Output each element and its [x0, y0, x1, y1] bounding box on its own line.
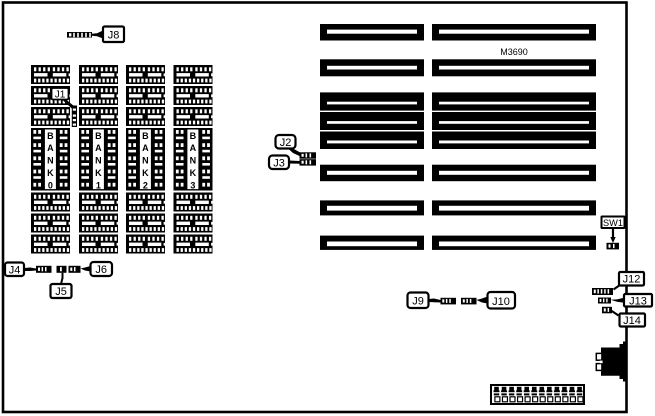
svg-text:J10: J10: [492, 296, 510, 308]
svg-text:1: 1: [96, 180, 101, 190]
svg-text:K: K: [142, 168, 149, 178]
svg-text:K: K: [47, 168, 54, 178]
svg-text:A: A: [95, 143, 102, 153]
svg-text:M3690: M3690: [500, 47, 528, 57]
svg-text:A: A: [142, 143, 149, 153]
svg-text:B: B: [95, 131, 102, 141]
svg-text:SW1: SW1: [603, 218, 623, 228]
svg-text:J8: J8: [108, 30, 120, 42]
svg-text:A: A: [47, 143, 54, 153]
svg-text:A: A: [190, 143, 197, 153]
svg-text:B: B: [142, 131, 149, 141]
svg-text:N: N: [142, 156, 149, 166]
svg-text:K: K: [190, 168, 197, 178]
svg-text:J5: J5: [55, 286, 67, 298]
svg-text:J6: J6: [95, 264, 107, 276]
svg-text:J3: J3: [273, 157, 285, 169]
svg-text:3: 3: [190, 180, 195, 190]
svg-text:B: B: [190, 131, 197, 141]
svg-text:J13: J13: [629, 296, 647, 308]
svg-text:2: 2: [143, 180, 148, 190]
svg-text:N: N: [95, 156, 102, 166]
svg-text:B: B: [47, 131, 54, 141]
svg-text:N: N: [47, 156, 54, 166]
svg-text:J4: J4: [9, 264, 21, 276]
svg-text:J14: J14: [623, 315, 641, 327]
svg-text:K: K: [95, 168, 102, 178]
svg-text:J12: J12: [623, 273, 641, 285]
svg-text:J2: J2: [280, 137, 292, 149]
svg-text:J9: J9: [412, 296, 424, 308]
svg-text:N: N: [190, 156, 197, 166]
svg-text:0: 0: [48, 180, 53, 190]
svg-text:J1: J1: [55, 89, 66, 100]
